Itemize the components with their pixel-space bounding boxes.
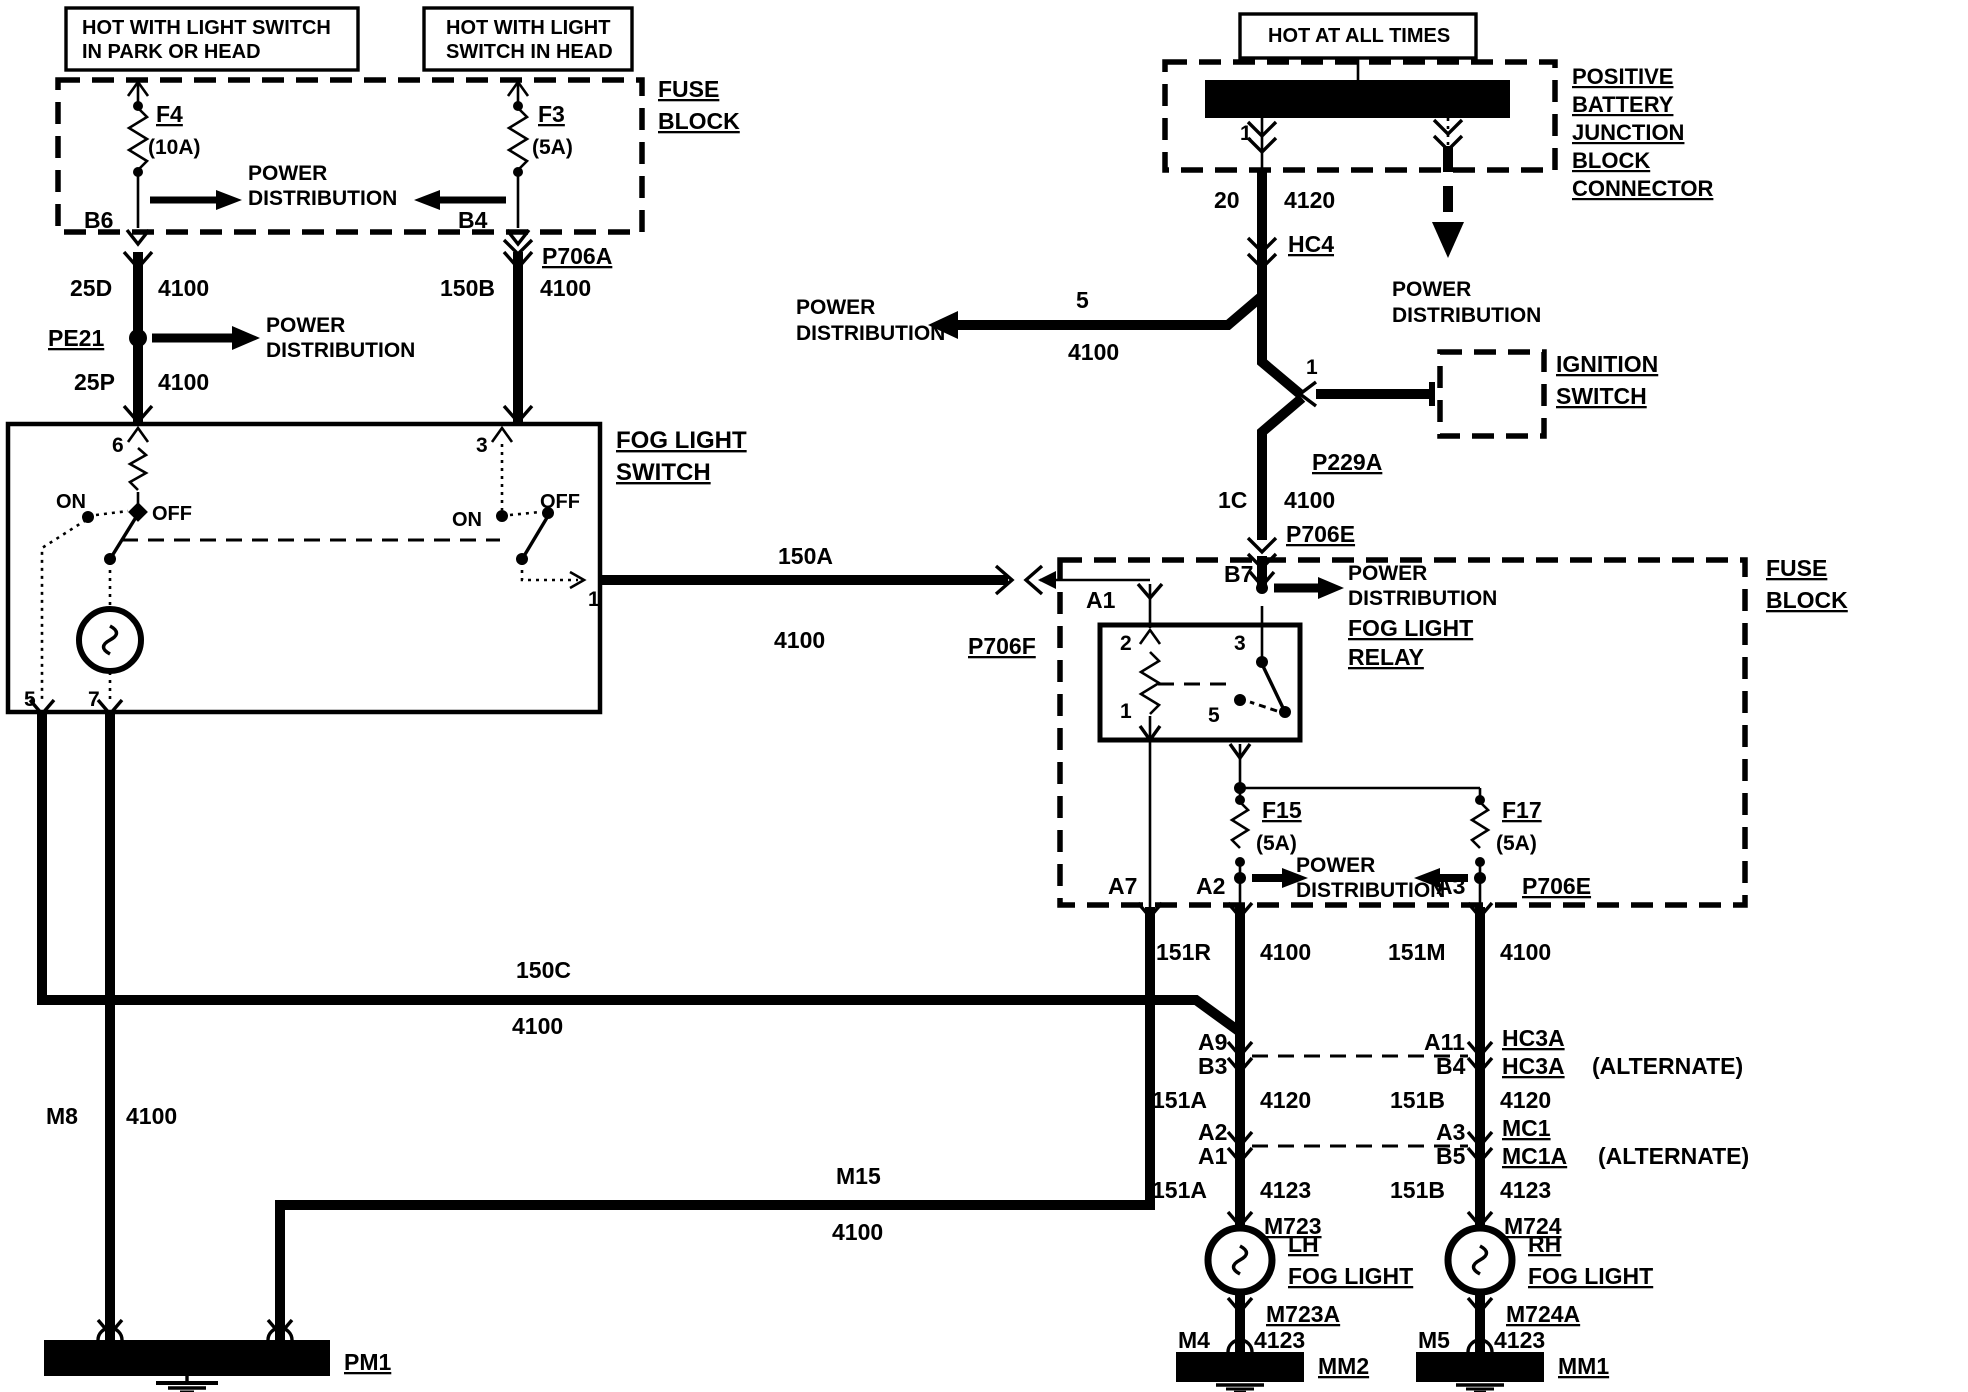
pin-a2: A2: [1196, 873, 1225, 899]
wire-m8: M8: [46, 1103, 78, 1129]
pin-a1-2: A1: [1198, 1143, 1228, 1169]
wire-m15: M15: [836, 1163, 881, 1189]
wire-5: 5: [1076, 287, 1089, 313]
conn-p229a: P229A: [1312, 449, 1382, 475]
wire-m4-4123: 4123: [1254, 1327, 1305, 1353]
battery-label-line2: BATTERY: [1572, 92, 1674, 117]
pe21-arrow: [232, 326, 260, 350]
wiring-diagram-page: HOT WITH LIGHT SWITCHIN PARK OR HEADHOT …: [0, 0, 1968, 1392]
note-head-line2: SWITCH IN HEAD: [446, 41, 613, 63]
relay-pin2-arrow: [1140, 630, 1160, 644]
thick-wires: [42, 146, 1480, 1352]
fuse-f17-element: [1472, 802, 1488, 848]
switch-pin3: 3: [476, 434, 488, 457]
wire-a7-m15: [280, 907, 1150, 1340]
lh-fog-light-line2: FOG LIGHT: [1288, 1263, 1413, 1289]
power-dist-6-line2: DISTRIBUTION: [1296, 879, 1445, 902]
connectors: [30, 120, 1492, 1334]
fuse-f3: F3: [538, 101, 565, 127]
wire-relay-pin5-branch: [1240, 744, 1480, 800]
switch-pin1: 1: [588, 588, 600, 611]
fuse-symbols: [129, 101, 1488, 867]
fuse-f4-rating: (10A): [148, 136, 201, 159]
fuse-f3-rating: (5A): [532, 136, 573, 159]
pin-a11: A11: [1424, 1029, 1465, 1055]
battery-label-line5: CONNECTOR: [1572, 176, 1713, 201]
pin-a2-2: A2: [1198, 1119, 1227, 1145]
a1-flow-arrow: [1038, 571, 1056, 589]
conn-hc4: HC4: [1288, 231, 1334, 257]
power-dist-3-line2: DISTRIBUTION: [796, 322, 945, 345]
relay-contact-blade: [1262, 664, 1284, 710]
wire-1c: 1C: [1218, 487, 1247, 513]
relay-pin3: 3: [1234, 632, 1246, 655]
power-dist-arrow-1: [216, 190, 242, 210]
relay-pin5: 5: [1208, 704, 1220, 727]
wire-151r: 151R: [1156, 939, 1211, 965]
wire-25d-4100: 4100: [158, 275, 209, 301]
relay-pin2: 2: [1120, 632, 1132, 655]
fuse-block-2-outline: [1060, 560, 1745, 905]
wire-151b-2: 151B: [1390, 1177, 1445, 1203]
fuse-f3-element: [509, 108, 527, 170]
fuse-f15: F15: [1262, 797, 1302, 823]
fog-light-relay-line1: FOG LIGHT: [1348, 615, 1473, 641]
fog-light-relay-line2: RELAY: [1348, 644, 1424, 670]
wire-m4: M4: [1178, 1327, 1210, 1353]
wire-1c-4100: 4100: [1284, 487, 1335, 513]
fuse-block-1-line1: FUSE: [658, 76, 719, 102]
pin-b7: B7: [1224, 561, 1253, 587]
ignition-switch-outline: [1440, 352, 1544, 436]
wire-151m-4100: 4100: [1500, 939, 1551, 965]
wire-150b: 150B: [440, 275, 495, 301]
wire-power-dist-branch: [958, 296, 1262, 325]
power-dist-arrow-2: [414, 190, 440, 210]
wire-151a-2: 151A: [1152, 1177, 1207, 1203]
wire-150a: 150A: [778, 543, 833, 569]
pin-b4-2: B4: [1436, 1053, 1466, 1079]
wire-5-4100: 4100: [1068, 339, 1119, 365]
note-hot-all-times: HOT AT ALL TIMES: [1268, 25, 1450, 47]
pin-a9: A9: [1198, 1029, 1227, 1055]
conn-hc3a-2: HC3A: [1502, 1053, 1565, 1079]
fog-light-switch-line1: FOG LIGHT: [616, 427, 747, 454]
wire-150c-4100: 4100: [512, 1013, 563, 1039]
conn-mc1: MC1: [1502, 1115, 1551, 1141]
note-park-head-line2: IN PARK OR HEAD: [82, 41, 261, 63]
ground-mm2: MM2: [1318, 1353, 1369, 1379]
fuse-f17-rating: (5A): [1496, 832, 1537, 855]
power-dist-6-line1: POWER: [1296, 854, 1375, 877]
wire-m15-4100: 4100: [832, 1219, 883, 1245]
power-dist-2-line1: POWER: [266, 314, 345, 337]
wire-25p: 25P: [74, 369, 115, 395]
wire-4123-2: 4123: [1500, 1177, 1551, 1203]
fuse-f4: F4: [156, 101, 183, 127]
switch-blade-left: [112, 514, 138, 556]
ground-bar-mm1: [1416, 1352, 1544, 1382]
fog-light-switch-line2: SWITCH: [616, 459, 711, 486]
power-dist-arrow-4: [1432, 222, 1464, 258]
thin-wires: [138, 58, 1480, 907]
fuse-f17: F17: [1502, 797, 1542, 823]
alternate-1: (ALTERNATE): [1592, 1053, 1743, 1079]
pin-a3-2: A3: [1436, 1119, 1465, 1145]
power-dist-1-line2: DISTRIBUTION: [248, 187, 397, 210]
fog-light-wiring-diagram: HOT WITH LIGHT SWITCHIN PARK OR HEADHOT …: [0, 0, 1968, 1392]
switch-pin6: 6: [112, 434, 124, 457]
battery-label-line1: POSITIVE: [1572, 64, 1673, 89]
switch-on-right: ON: [452, 509, 482, 531]
wire-150b-4100: 4100: [540, 275, 591, 301]
wire-m8-4100: 4100: [126, 1103, 177, 1129]
switch-pin7: 7: [88, 688, 100, 711]
power-dist-arrow-5: [1318, 577, 1344, 599]
conn-p706a: P706A: [542, 243, 612, 269]
labels-layer: HOT WITH LIGHT SWITCHIN PARK OR HEADHOT …: [24, 17, 1848, 1379]
pin-a1: A1: [1086, 587, 1116, 613]
ground-symbol-mm1: [1456, 1385, 1504, 1392]
conn-hc3a-1: HC3A: [1502, 1025, 1565, 1051]
rh-fog-light-line2: FOG LIGHT: [1528, 1263, 1653, 1289]
power-dist-2-line2: DISTRIBUTION: [266, 339, 415, 362]
switch-resistor: [130, 448, 146, 490]
wire-m5: M5: [1418, 1327, 1450, 1353]
wire-151r-4100: 4100: [1260, 939, 1311, 965]
ignition-pin1: 1: [1306, 356, 1318, 379]
ground-bar-mm2: [1176, 1352, 1304, 1382]
wire-150a-4100: 4100: [774, 627, 825, 653]
wire-4120-3: 4120: [1500, 1087, 1551, 1113]
wire-4120-2: 4120: [1260, 1087, 1311, 1113]
conn-p706e-2: P706E: [1522, 873, 1591, 899]
fuse-f4-element: [129, 108, 147, 170]
wire-151b-1: 151B: [1390, 1087, 1445, 1113]
conn-mc1a: MC1A: [1502, 1143, 1567, 1169]
lh-fog-light-line1: LH: [1288, 1231, 1319, 1257]
wire-1c: [1262, 398, 1302, 540]
pin-b4: B4: [458, 207, 488, 233]
power-dist-5-line1: POWER: [1348, 562, 1427, 585]
ground-pm1: PM1: [344, 1349, 392, 1375]
wire-4123-1: 4123: [1260, 1177, 1311, 1203]
switch-on-left: ON: [56, 491, 86, 513]
conn-m723a: M723A: [1266, 1301, 1340, 1327]
battery-label-line3: JUNCTION: [1572, 120, 1684, 145]
wire-150c: 150C: [516, 957, 571, 983]
fuse-block-2-line1: FUSE: [1766, 555, 1827, 581]
pin-b3: B3: [1198, 1053, 1227, 1079]
pin-a3: A3: [1436, 873, 1465, 899]
switch-blade-right: [524, 516, 548, 556]
power-dist-3-line1: POWER: [796, 296, 875, 319]
wire-151a-1: 151A: [1152, 1087, 1207, 1113]
fuse-f15-element: [1232, 802, 1248, 848]
conn-p706f: P706F: [968, 633, 1036, 659]
pin-b6: B6: [84, 207, 113, 233]
rh-fog-light-line1: RH: [1528, 1231, 1561, 1257]
ground-symbol-pm1: [156, 1376, 218, 1392]
pin-b5: B5: [1436, 1143, 1466, 1169]
power-dist-4-line1: POWER: [1392, 278, 1471, 301]
ignition-switch-line2: SWITCH: [1556, 383, 1647, 409]
switch-off-left: OFF: [152, 503, 192, 525]
power-dist-4-line2: DISTRIBUTION: [1392, 304, 1541, 327]
wire-151m: 151M: [1388, 939, 1446, 965]
wire-25d: 25D: [70, 275, 112, 301]
ignition-switch-line1: IGNITION: [1556, 351, 1658, 377]
note-head-line1: HOT WITH LIGHT: [446, 17, 610, 39]
battery-pin1: 1: [1240, 122, 1252, 145]
switch-pin6-arrow: [128, 428, 148, 442]
wire-m5-4123: 4123: [1494, 1327, 1545, 1353]
wire-to-p229a: [1262, 300, 1300, 394]
switch-pin5: 5: [24, 688, 36, 711]
relay-pin1: 1: [1120, 700, 1132, 723]
conn-pe21: PE21: [48, 325, 104, 351]
switch-pin3-arrow: [492, 428, 512, 442]
pe21-splice-dot: [129, 329, 147, 347]
p706e-connector: [1248, 538, 1276, 552]
ground-symbol-mm2: [1216, 1385, 1264, 1392]
wire-4120: 4120: [1284, 187, 1335, 213]
conn-m724a: M724A: [1506, 1301, 1580, 1327]
relay-coil: [1141, 652, 1159, 714]
fuse-block-2-line2: BLOCK: [1766, 587, 1848, 613]
battery-label-line4: BLOCK: [1572, 148, 1650, 173]
battery-bus-bar: [1205, 80, 1510, 118]
note-park-head-line1: HOT WITH LIGHT SWITCH: [82, 17, 331, 39]
switch-off-right: OFF: [540, 491, 580, 513]
fuse-block-1-line2: BLOCK: [658, 108, 740, 134]
power-dist-5-line2: DISTRIBUTION: [1348, 587, 1497, 610]
ground-mm1: MM1: [1558, 1353, 1609, 1379]
power-dist-1-line1: POWER: [248, 162, 327, 185]
alternate-2: (ALTERNATE): [1598, 1143, 1749, 1169]
wire-25p-4100: 4100: [158, 369, 209, 395]
pin-a7: A7: [1108, 873, 1137, 899]
fuse-f15-rating: (5A): [1256, 832, 1297, 855]
wire-20: 20: [1214, 187, 1240, 213]
conn-p706e: P706E: [1286, 521, 1355, 547]
ground-bar-pm1: [44, 1340, 330, 1376]
